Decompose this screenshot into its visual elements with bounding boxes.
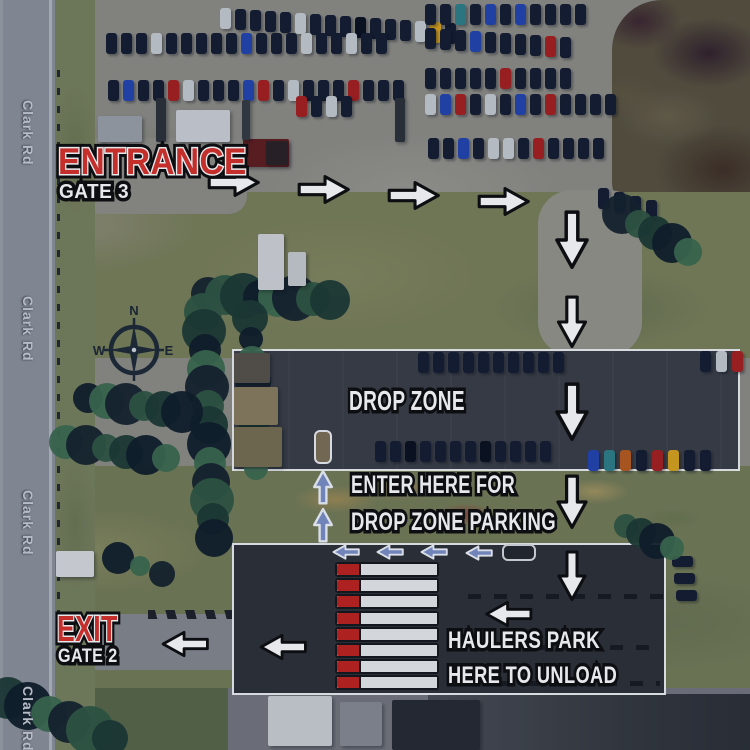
- haulers-line1-text: HAULERS PARK: [448, 629, 600, 653]
- exit-label: EXIT EXIT EXIT: [57, 611, 118, 647]
- compass-east-label: E: [165, 343, 174, 358]
- enter-here-line2-text: DROP ZONE PARKING: [351, 510, 556, 535]
- road-name-label: Clark Rd: [20, 686, 36, 750]
- compass-north-label: N: [129, 303, 138, 318]
- tree: [109, 435, 143, 469]
- haulers-line2: HERE TO UNLOAD HERE TO UNLOAD: [448, 664, 617, 688]
- drop-zone-area: [232, 349, 740, 471]
- compass-west-label: W: [93, 343, 106, 358]
- parking-stripes: [468, 594, 663, 599]
- gate3-text: GATE 3: [59, 182, 129, 202]
- enter-here-line1-text: ENTER HERE FOR: [351, 473, 515, 498]
- road-name-label: Clark Rd: [20, 296, 36, 362]
- drop-zone-label: DROP ZONE DROP ZONE: [349, 387, 465, 415]
- drop-zone-text: DROP ZONE: [349, 387, 465, 415]
- haulers-line1: HAULERS PARK HAULERS PARK: [448, 629, 600, 653]
- gate2-text: GATE 2: [58, 647, 118, 666]
- entrance-text: ENTRANCE: [58, 143, 247, 180]
- tree: [161, 391, 203, 433]
- exit-text: EXIT: [57, 611, 118, 647]
- compass-rose: N E S W: [92, 302, 176, 396]
- enter-here-line2: DROP ZONE PARKING DROP ZONE PARKING: [351, 510, 556, 535]
- scrub-terrain: [612, 0, 750, 212]
- tree: [192, 390, 224, 422]
- dirt-path: [538, 190, 642, 356]
- tree: [92, 434, 120, 462]
- haulers-line2-text: HERE TO UNLOAD: [448, 664, 617, 688]
- parking-map: N E S W ENTRANCE ENTRANCE ENTRANCE GATE …: [0, 0, 750, 750]
- compass-south-label: S: [130, 382, 139, 396]
- road-name-label: Clark Rd: [20, 490, 36, 556]
- road-name-label: Clark Rd: [20, 100, 36, 166]
- pavement-bottom-dark: [428, 694, 750, 750]
- tree: [145, 391, 181, 427]
- gate2-label: GATE 2 GATE 2: [58, 647, 118, 666]
- tree: [190, 406, 228, 444]
- enter-here-line1: ENTER HERE FOR ENTER HERE FOR: [351, 473, 515, 498]
- tree: [185, 365, 229, 409]
- gate3-label: GATE 3 GATE 3: [59, 182, 129, 202]
- tree: [187, 422, 231, 466]
- entrance-label: ENTRANCE ENTRANCE ENTRANCE: [58, 143, 247, 180]
